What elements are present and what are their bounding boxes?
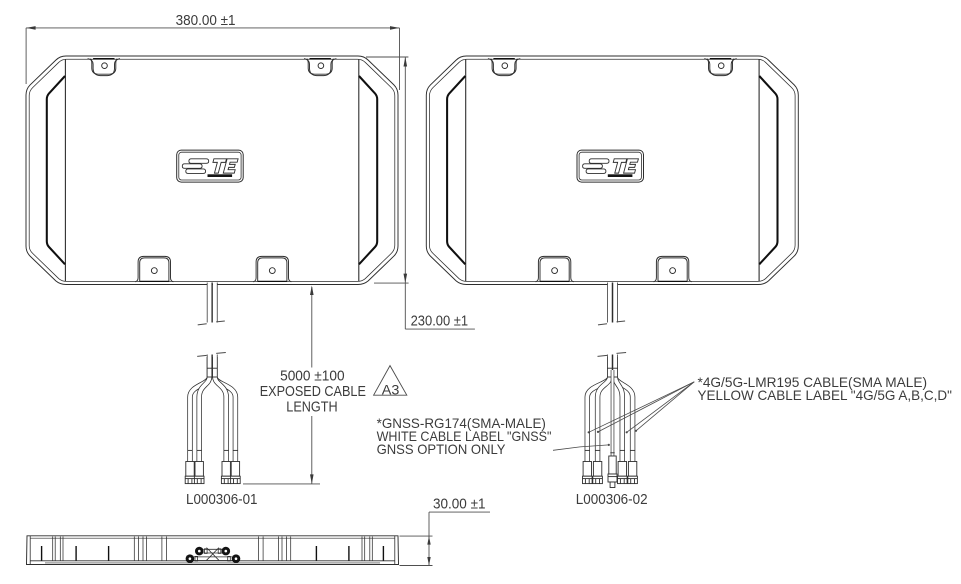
svg-text:30.00 ±1: 30.00 ±1 xyxy=(433,497,486,513)
svg-text:EXPOSED CABLE: EXPOSED CABLE xyxy=(260,384,366,400)
svg-text:L000306-01: L000306-01 xyxy=(186,491,258,508)
svg-text:A3: A3 xyxy=(382,383,400,399)
svg-text:L000306-02: L000306-02 xyxy=(576,491,648,508)
svg-text:380.00 ±1: 380.00 ±1 xyxy=(176,12,236,29)
svg-text:YELLOW CABLE LABEL "4G/5G A,B,: YELLOW CABLE LABEL "4G/5G A,B,C,D" xyxy=(698,388,952,403)
svg-text:5000 ±100: 5000 ±100 xyxy=(280,369,345,385)
svg-text:230.00 ±1: 230.00 ±1 xyxy=(411,313,469,330)
svg-text:GNSS OPTION ONLY: GNSS OPTION ONLY xyxy=(377,442,506,457)
svg-text:LENGTH: LENGTH xyxy=(286,399,337,415)
